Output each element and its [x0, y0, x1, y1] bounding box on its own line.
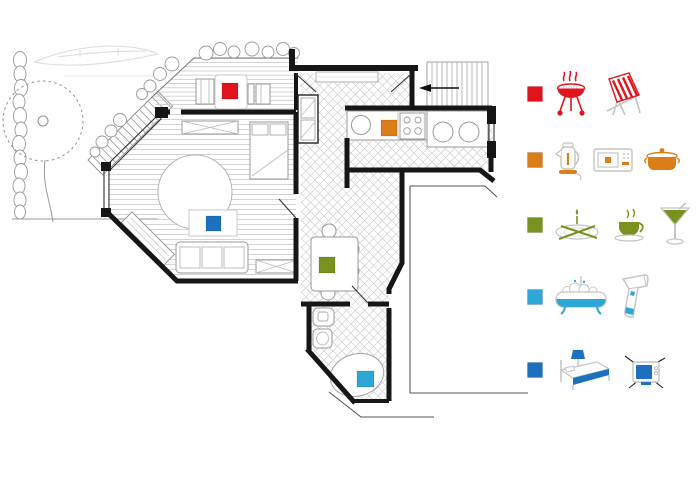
legend-icons-sleeping	[553, 348, 700, 392]
legend-row-kitchen[interactable]	[527, 138, 700, 182]
kettle-icon	[553, 138, 583, 182]
legend-icons-terrace	[553, 71, 700, 117]
terrace-marker[interactable]	[222, 83, 238, 99]
bed-icon	[553, 348, 613, 392]
cocktail-icon	[659, 203, 691, 247]
hairdryer-icon	[619, 273, 653, 321]
legend-icons-bathroom	[553, 273, 700, 321]
dining-marker[interactable]	[319, 257, 335, 273]
living-marker[interactable]	[206, 216, 221, 231]
basin	[459, 122, 479, 142]
legend-row-bathroom[interactable]	[527, 273, 700, 321]
deck-chair-icon	[599, 71, 645, 117]
floorplan-page	[0, 0, 700, 500]
legend-swatch-terrace	[527, 86, 543, 102]
legend-swatch-bathroom	[527, 289, 543, 305]
bbq-grill-icon	[553, 71, 589, 117]
coffee-cup-icon	[611, 207, 649, 243]
legend-swatch-dining	[527, 217, 543, 233]
tv-icon	[623, 350, 667, 390]
bed	[250, 122, 288, 179]
sofa	[176, 242, 248, 273]
exterior-stairs	[419, 62, 488, 108]
legend-row-terrace[interactable]	[527, 71, 700, 117]
bathroom-marker[interactable]	[357, 371, 374, 387]
utility-column	[298, 95, 318, 143]
kitchen-sink	[352, 116, 371, 135]
legend	[527, 0, 700, 500]
legend-icons-kitchen	[553, 138, 700, 182]
kitchen-marker[interactable]	[381, 120, 397, 136]
cooking-pot-icon	[643, 145, 681, 175]
dinner-setting-icon	[553, 208, 601, 242]
legend-swatch-sleeping	[527, 362, 543, 378]
bathtub-icon	[553, 275, 609, 319]
stove	[400, 113, 425, 139]
legend-row-sleeping[interactable]	[527, 348, 700, 392]
legend-swatch-kitchen	[527, 152, 543, 168]
hedge	[13, 52, 28, 220]
legend-row-dining[interactable]	[527, 203, 700, 247]
boat-sketch	[34, 46, 160, 76]
basin	[433, 122, 453, 142]
legend-icons-dining	[553, 203, 700, 247]
microwave-icon	[593, 145, 633, 175]
stairs-direction-arrow	[419, 84, 431, 92]
